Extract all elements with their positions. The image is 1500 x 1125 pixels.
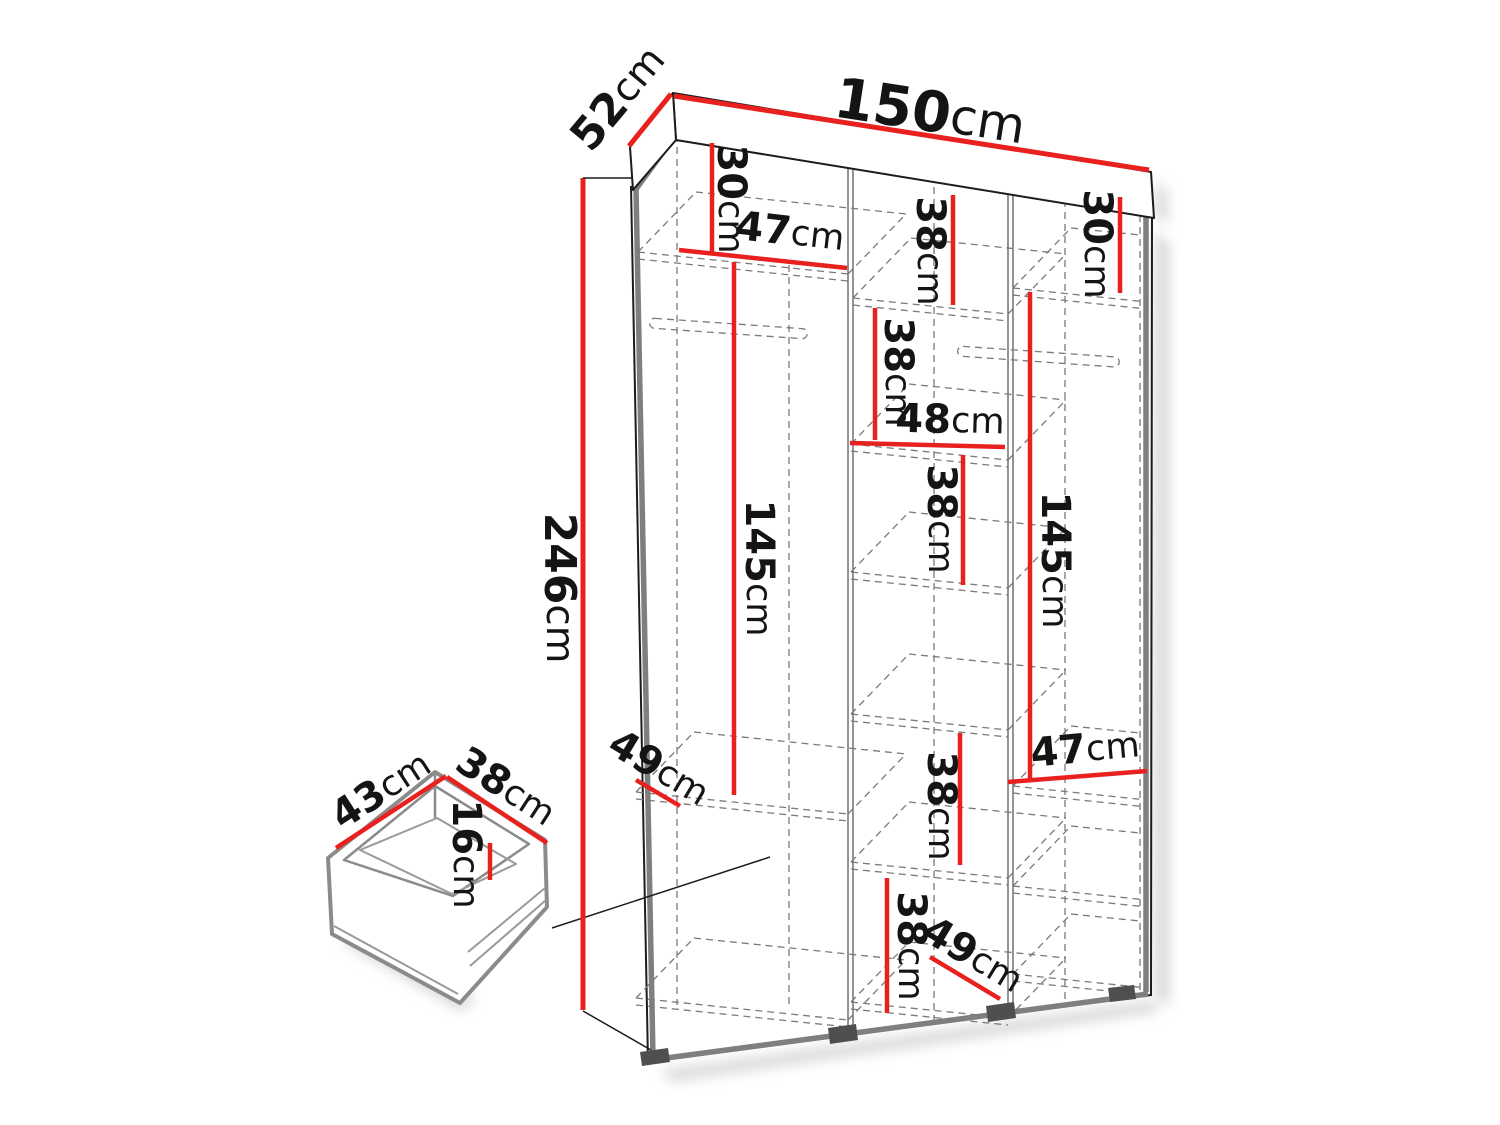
shelf-middle-4 bbox=[851, 654, 1066, 737]
diagram-canvas: 150cm 52cm 246cm 30cm 47cm 145cm 49cm 38… bbox=[0, 0, 1500, 1125]
dim-label-left-49: 49cm bbox=[600, 720, 717, 816]
dim-label-drawer-16: 16cm bbox=[443, 799, 489, 908]
hanging-rail-left bbox=[649, 318, 807, 339]
dim-label-mid-38-4: 38cm bbox=[918, 751, 964, 860]
dim-label-overall-height: 246cm bbox=[535, 513, 586, 664]
dim-label-left-145: 145cm bbox=[736, 499, 782, 636]
dim-label-mid-38-1: 38cm bbox=[907, 196, 953, 305]
dim-label-mid-38-3: 38cm bbox=[918, 464, 964, 573]
shelf-middle-1 bbox=[853, 238, 1066, 321]
wardrobe-dimension-diagram: 150cm 52cm 246cm 30cm 47cm 145cm 49cm 38… bbox=[0, 0, 1500, 1125]
dim-line-mid-48 bbox=[850, 443, 1005, 447]
dim-label-right-145: 145cm bbox=[1032, 491, 1078, 628]
dim-label-mid-48: 48cm bbox=[895, 396, 1005, 445]
shelf-right-3 bbox=[1013, 826, 1147, 907]
partition-1 bbox=[848, 162, 853, 1036]
hanging-rail-right bbox=[957, 346, 1119, 367]
dim-label-right-30: 30cm bbox=[1074, 189, 1120, 298]
dim-label-right-47: 47cm bbox=[1029, 721, 1142, 776]
